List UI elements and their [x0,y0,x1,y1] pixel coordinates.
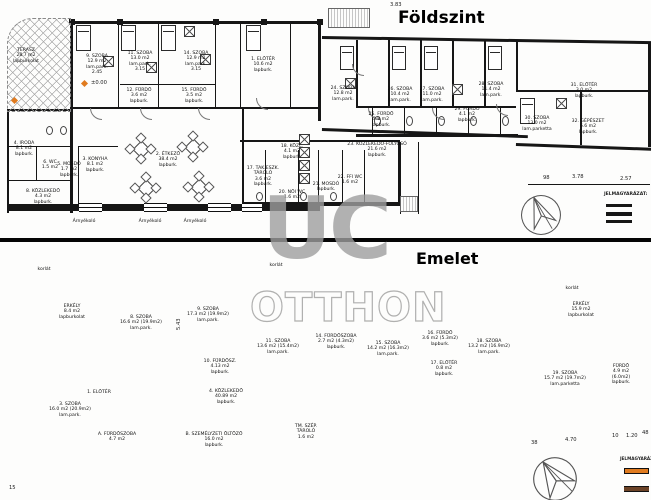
wall-segment [418,142,419,214]
room-label: 26. SZOBA 10.4 m2 lam.park. [382,87,418,103]
legend-line-sample-3 [606,220,632,223]
chair-symbol [176,141,187,152]
dimension-label: 1.20 [626,433,638,439]
room-label: ERKÉLY 8.4 m2 lapburkolat [51,304,93,320]
room-label: TM. SZÉP. TÁROLÓ 1.6 m2 [291,424,321,440]
room-label: 9. SZOBA 17.3 m2 (19.9m2) lam.park. [183,307,233,323]
watermark-uc: UC [262,186,389,272]
door-swing-arc [432,108,444,120]
wall-segment [290,24,291,108]
room-label: 15. SZOBA 14.2 m2 (16.3m2) lam.park. [362,341,414,357]
room-label: 18. SZOBA 13.2 m2 (16.9m2) lam.park. [464,339,514,355]
wardrobe-symbol [299,160,310,171]
chair-symbol [187,130,198,141]
bed-symbol [121,25,136,51]
room-label: 17. ELŐTÉR 0.8 m2 lapburk. [426,361,462,377]
legend-line-sample-2 [606,212,632,216]
dimension-label: 3.83 [390,2,402,8]
dimension-label: 15 [9,485,16,491]
elevation-marker [81,80,88,87]
floor-plan-sheet: Földszint Emelet UC OTTHON TERASZ 28.7 m… [0,0,651,500]
window-symbol [208,203,231,212]
wall-segment [516,143,651,151]
room-label: TERASZ 28.7 m2 lapburkolat [5,48,47,64]
wall-segment [648,42,651,147]
room-label: 3. KONYHA 8.1 m2 lapburk. [78,157,112,173]
room-label: FÜRDŐ 4.9 m2 (6.0m2) lapburk. [609,364,633,386]
room-label: 1. ELŐTÉR [82,390,116,395]
room-label: 24. SZOBA 12.8 m2 lam.park. [325,86,361,102]
dimension-label: 98 [543,175,550,181]
room-label: 4. KÖZLEKEDŐ 40.89 m2 lapburk. [202,389,250,405]
room-label: 2. ÉTKEZŐ 38.4 m2 lapburk. [148,152,188,168]
room-label: 30. SZOBA 13.0 m2 lam.parketta [516,116,558,132]
chair-symbol [129,182,140,193]
room-label: 16. FÜRDŐ 3.6 m2 (5.3m2) lapburk. [419,331,461,347]
room-label: 11. SZOBA 13.6 m2 (15.4m2) lam.park. [253,339,303,355]
dimension-label: 10 [612,433,619,439]
wall-segment [7,109,9,213]
striped-deck-area [328,8,370,28]
dimension-label: 48 [642,430,649,436]
door-swing-arc [496,104,508,116]
wall-segment [261,19,267,25]
wall-segment [404,106,405,136]
watermark-otthon: OTTHON [250,288,446,328]
room-label: 11. SZOBA 13.0 m2 lam.park. 3.15 [121,51,159,73]
bed-symbol [161,25,176,51]
dimension-label: 38 [531,440,538,446]
door-swing-arc [140,108,152,120]
room-label: 29. FÜRDŐ 4.1 m2 lapburk. [451,107,483,123]
sanitary-fixture-symbol [46,126,53,135]
room-label: korlát [560,286,584,291]
wall-segment [452,40,454,108]
wall-segment [118,24,119,108]
bed-symbol [246,25,261,51]
room-label: 10. FÜRDŐSZ. 4.13 m2 lapburk. [199,359,241,375]
wall-segment [322,36,651,44]
legend-wall-sample-2 [624,486,649,492]
sanitary-fixture-symbol [406,116,413,126]
sanitary-fixture-symbol [60,126,67,135]
crosshatch-terrace-area [7,18,71,112]
bed-symbol [392,46,406,70]
room-label: 18. KÖZL. 4.1 m2 lapburk. [276,144,308,160]
sanitary-fixture-symbol [502,116,509,126]
dimension-label: 3.78 [572,174,584,180]
room-label: Árnyékoló [179,219,211,224]
wall-segment [215,24,216,108]
chair-symbol [182,181,193,192]
room-label: 27. SZOBA 11.0 m2 lam.park. [414,87,450,103]
wall-segment [318,21,321,121]
room-label: 32. GÉPÉSZET 6.6 m2 lapburk. [567,119,609,135]
room-label: B. SZEMÉLYZETI ÖLTÖZŐ 16.0 m2 lapburk. [181,432,247,448]
wall-segment [72,107,319,109]
dimension-label: ±0.00 [91,80,107,86]
room-label: 3. SZOBA 16.0 m2 (20.9m2) lam.park. [45,402,95,418]
bed-symbol [424,46,438,70]
chair-symbol [124,143,135,154]
wall-segment [240,24,241,108]
legend-new-wall-sample [624,468,649,474]
room-label: Árnyékoló [134,219,166,224]
room-label: 1. ELŐTÉR 10.6 m2 lapburk. [243,57,283,73]
wardrobe-symbol [556,98,567,109]
room-label: 14. SZOBA 12.9 m2 lam.park. 3.15 [177,51,215,73]
room-label: 19. SZOBA 15.7 m2 (19.7m2) lam.parketta [538,371,592,387]
room-label: ERKÉLY 15.9 m2 lapburkolat [560,302,602,318]
chair-symbol [140,171,151,182]
chair-symbol [193,170,204,181]
room-label: A. FÜRDŐSZOBA 4.7 m2 [93,432,141,443]
wall-segment [7,180,71,181]
dining-table-symbol [133,175,159,201]
room-label: 9. SZOBA 12.9 m2 lam.park. 2.45 [78,54,116,76]
dimension-label: 4.70 [565,437,577,443]
room-label: 14. FÜRDŐSZOBA 2.7 m2 (4.3m2) lapburk. [309,334,363,350]
dimension-label: 5.43 [176,318,182,330]
room-label: 8. KÖZLEKEDŐ 4.3 m2 lapburk. [20,189,66,205]
window-symbol [79,203,102,212]
room-label: 31. ELŐTÉR 3.0 m2 lapburk. [567,83,601,99]
wall-segment [120,84,216,85]
chair-symbol [135,132,146,143]
wardrobe-symbol [184,26,195,37]
room-label: 8. SZOBA 16.6 m2 (19.9m2) lam.park. [116,315,166,331]
ground-legend-title: JELMAGYARÁZAT: [604,192,647,197]
legend-line-sample-1 [606,204,632,207]
wall-segment [213,19,219,25]
dining-table-symbol [186,174,212,200]
room-label: 28. SZOBA 11.4 m2 lam.park. [473,82,509,98]
striped-deck-area [400,196,418,212]
wall-segment [528,184,650,185]
room-label: 23. KÖZLEKEDŐ-FOLYOSÓ 21.6 m2 lapburk. [341,142,413,158]
room-label: 12. FÜRDŐ 3.6 m2 lapburk. [122,88,156,104]
room-label: 4. IRODA 8.1 m2 lapburk. [7,141,41,157]
wall-segment [516,40,518,92]
door-swing-arc [352,64,364,76]
wall-segment [72,21,320,24]
wall-segment [242,108,244,204]
wardrobe-symbol [452,84,463,95]
room-label: korlát [32,267,56,272]
window-symbol [144,203,167,212]
wall-segment [78,146,118,147]
wall-segment [356,134,518,137]
door-swing-arc [198,108,210,120]
bed-symbol [76,25,91,51]
room-label: 25. FÜRDŐ 3.8 m2 lapburk. [365,112,397,128]
room-label: Árnyékoló [68,219,100,224]
upper-legend-title: JELMAGYARÁZAT: [620,456,651,461]
window-symbol [242,203,262,212]
door-swing-arc [90,108,102,120]
dimension-label: 2.57 [620,176,632,182]
wall-segment [317,19,323,25]
room-label: 15. FÜRDŐ 3.5 m2 lapburk. [177,88,211,104]
bed-symbol [488,46,502,70]
